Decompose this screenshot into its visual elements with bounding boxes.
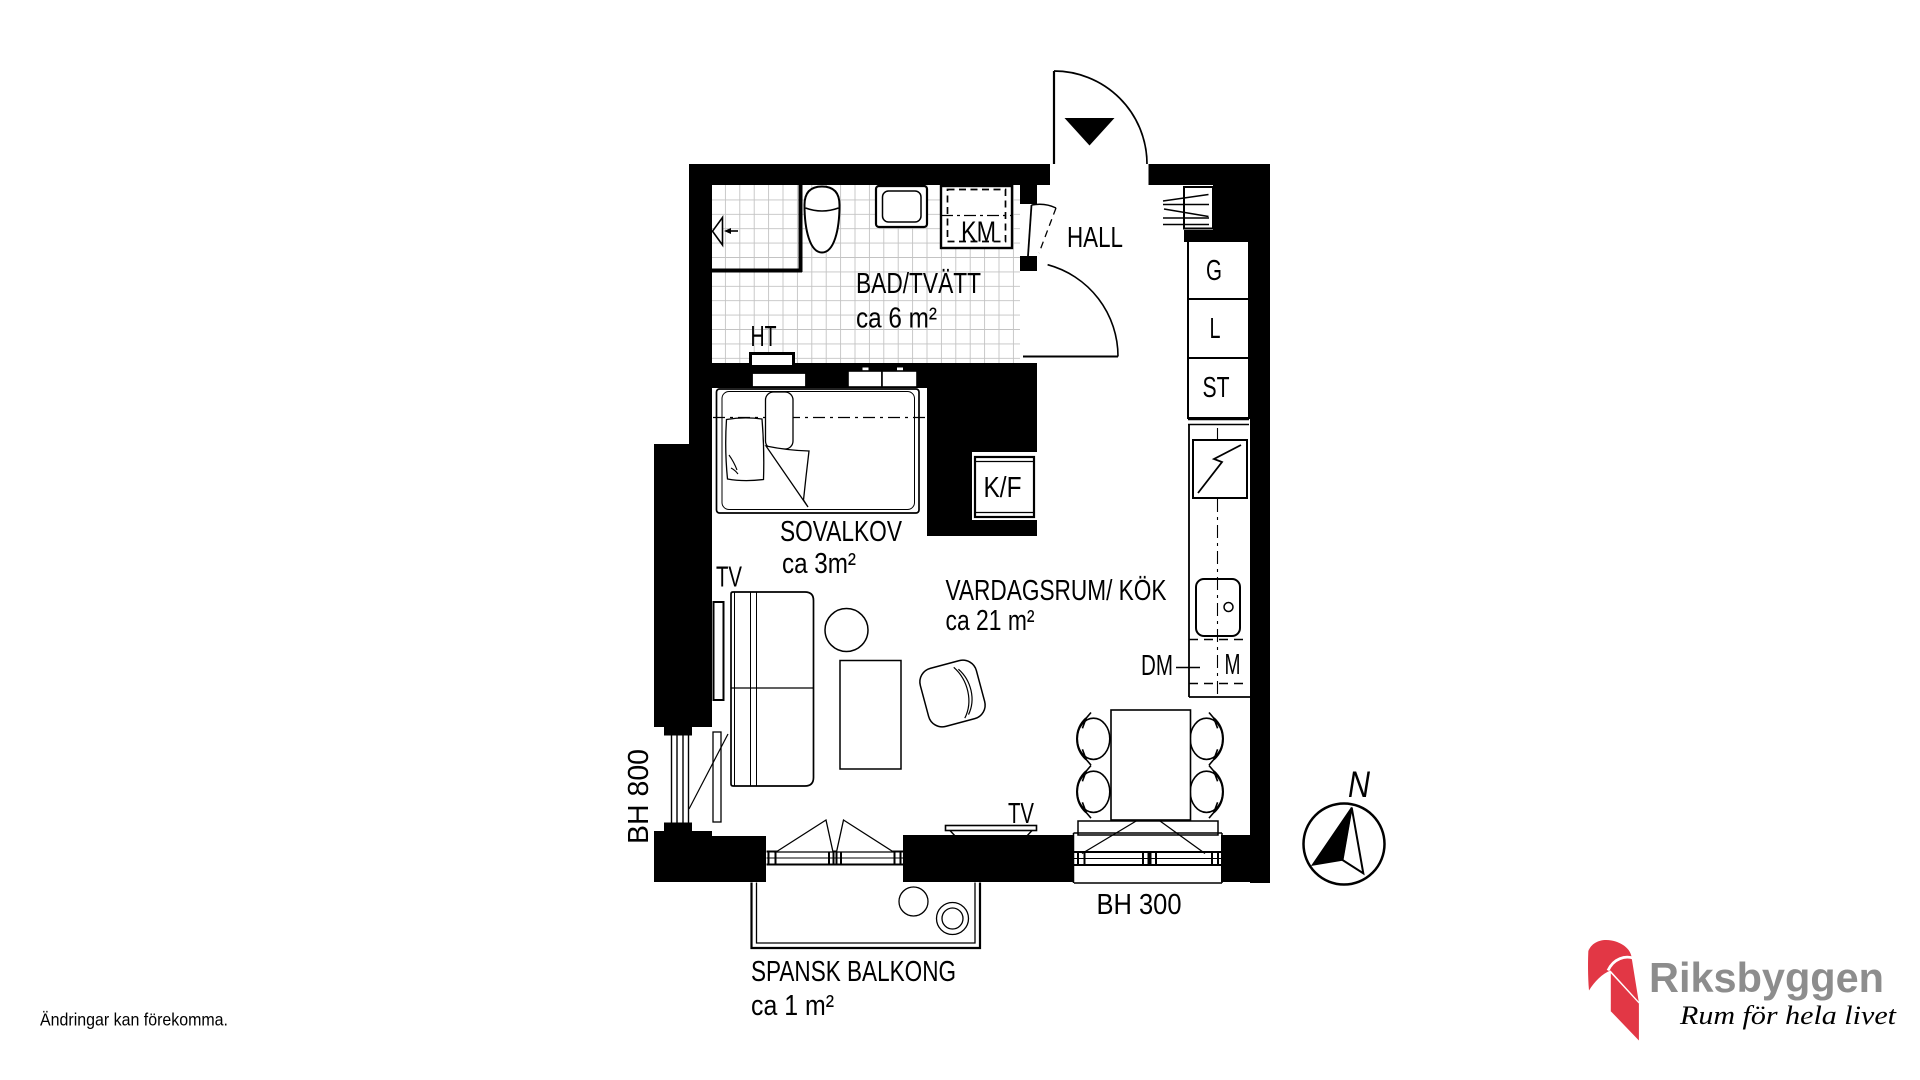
svg-text:G: G	[1206, 255, 1222, 287]
svg-text:N: N	[1348, 764, 1370, 805]
svg-text:DM: DM	[1141, 650, 1173, 682]
svg-text:ca 1 m²: ca 1 m²	[751, 990, 834, 1022]
svg-text:HT: HT	[751, 321, 777, 353]
svg-text:TV: TV	[1008, 798, 1034, 830]
svg-text:BH 800: BH 800	[623, 749, 655, 844]
svg-text:HALL: HALL	[1067, 222, 1123, 254]
svg-text:ca 21 m²: ca 21 m²	[946, 605, 1035, 637]
svg-text:ST: ST	[1203, 372, 1230, 404]
svg-text:Rum för hela livet: Rum för hela livet	[1679, 1001, 1897, 1030]
svg-text:KM: KM	[961, 217, 996, 249]
svg-text:L: L	[1210, 313, 1221, 345]
svg-text:ca 6 m²: ca 6 m²	[856, 303, 937, 335]
svg-text:Riksbyggen: Riksbyggen	[1649, 954, 1884, 1001]
svg-text:SPANSK BALKONG: SPANSK BALKONG	[751, 956, 956, 988]
svg-text:BH 300: BH 300	[1097, 889, 1182, 921]
svg-text:BAD/TVÄTT: BAD/TVÄTT	[856, 268, 981, 300]
svg-text:TV: TV	[716, 562, 742, 594]
svg-text:Ändringar kan förekomma.: Ändringar kan förekomma.	[40, 1010, 228, 1030]
svg-text:K/F: K/F	[984, 472, 1022, 504]
svg-text:VARDAGSRUM/ KÖK: VARDAGSRUM/ KÖK	[946, 575, 1168, 607]
svg-text:SOVALKOV: SOVALKOV	[780, 516, 903, 548]
svg-text:ca 3m²: ca 3m²	[782, 548, 856, 580]
svg-text:M: M	[1225, 649, 1241, 681]
